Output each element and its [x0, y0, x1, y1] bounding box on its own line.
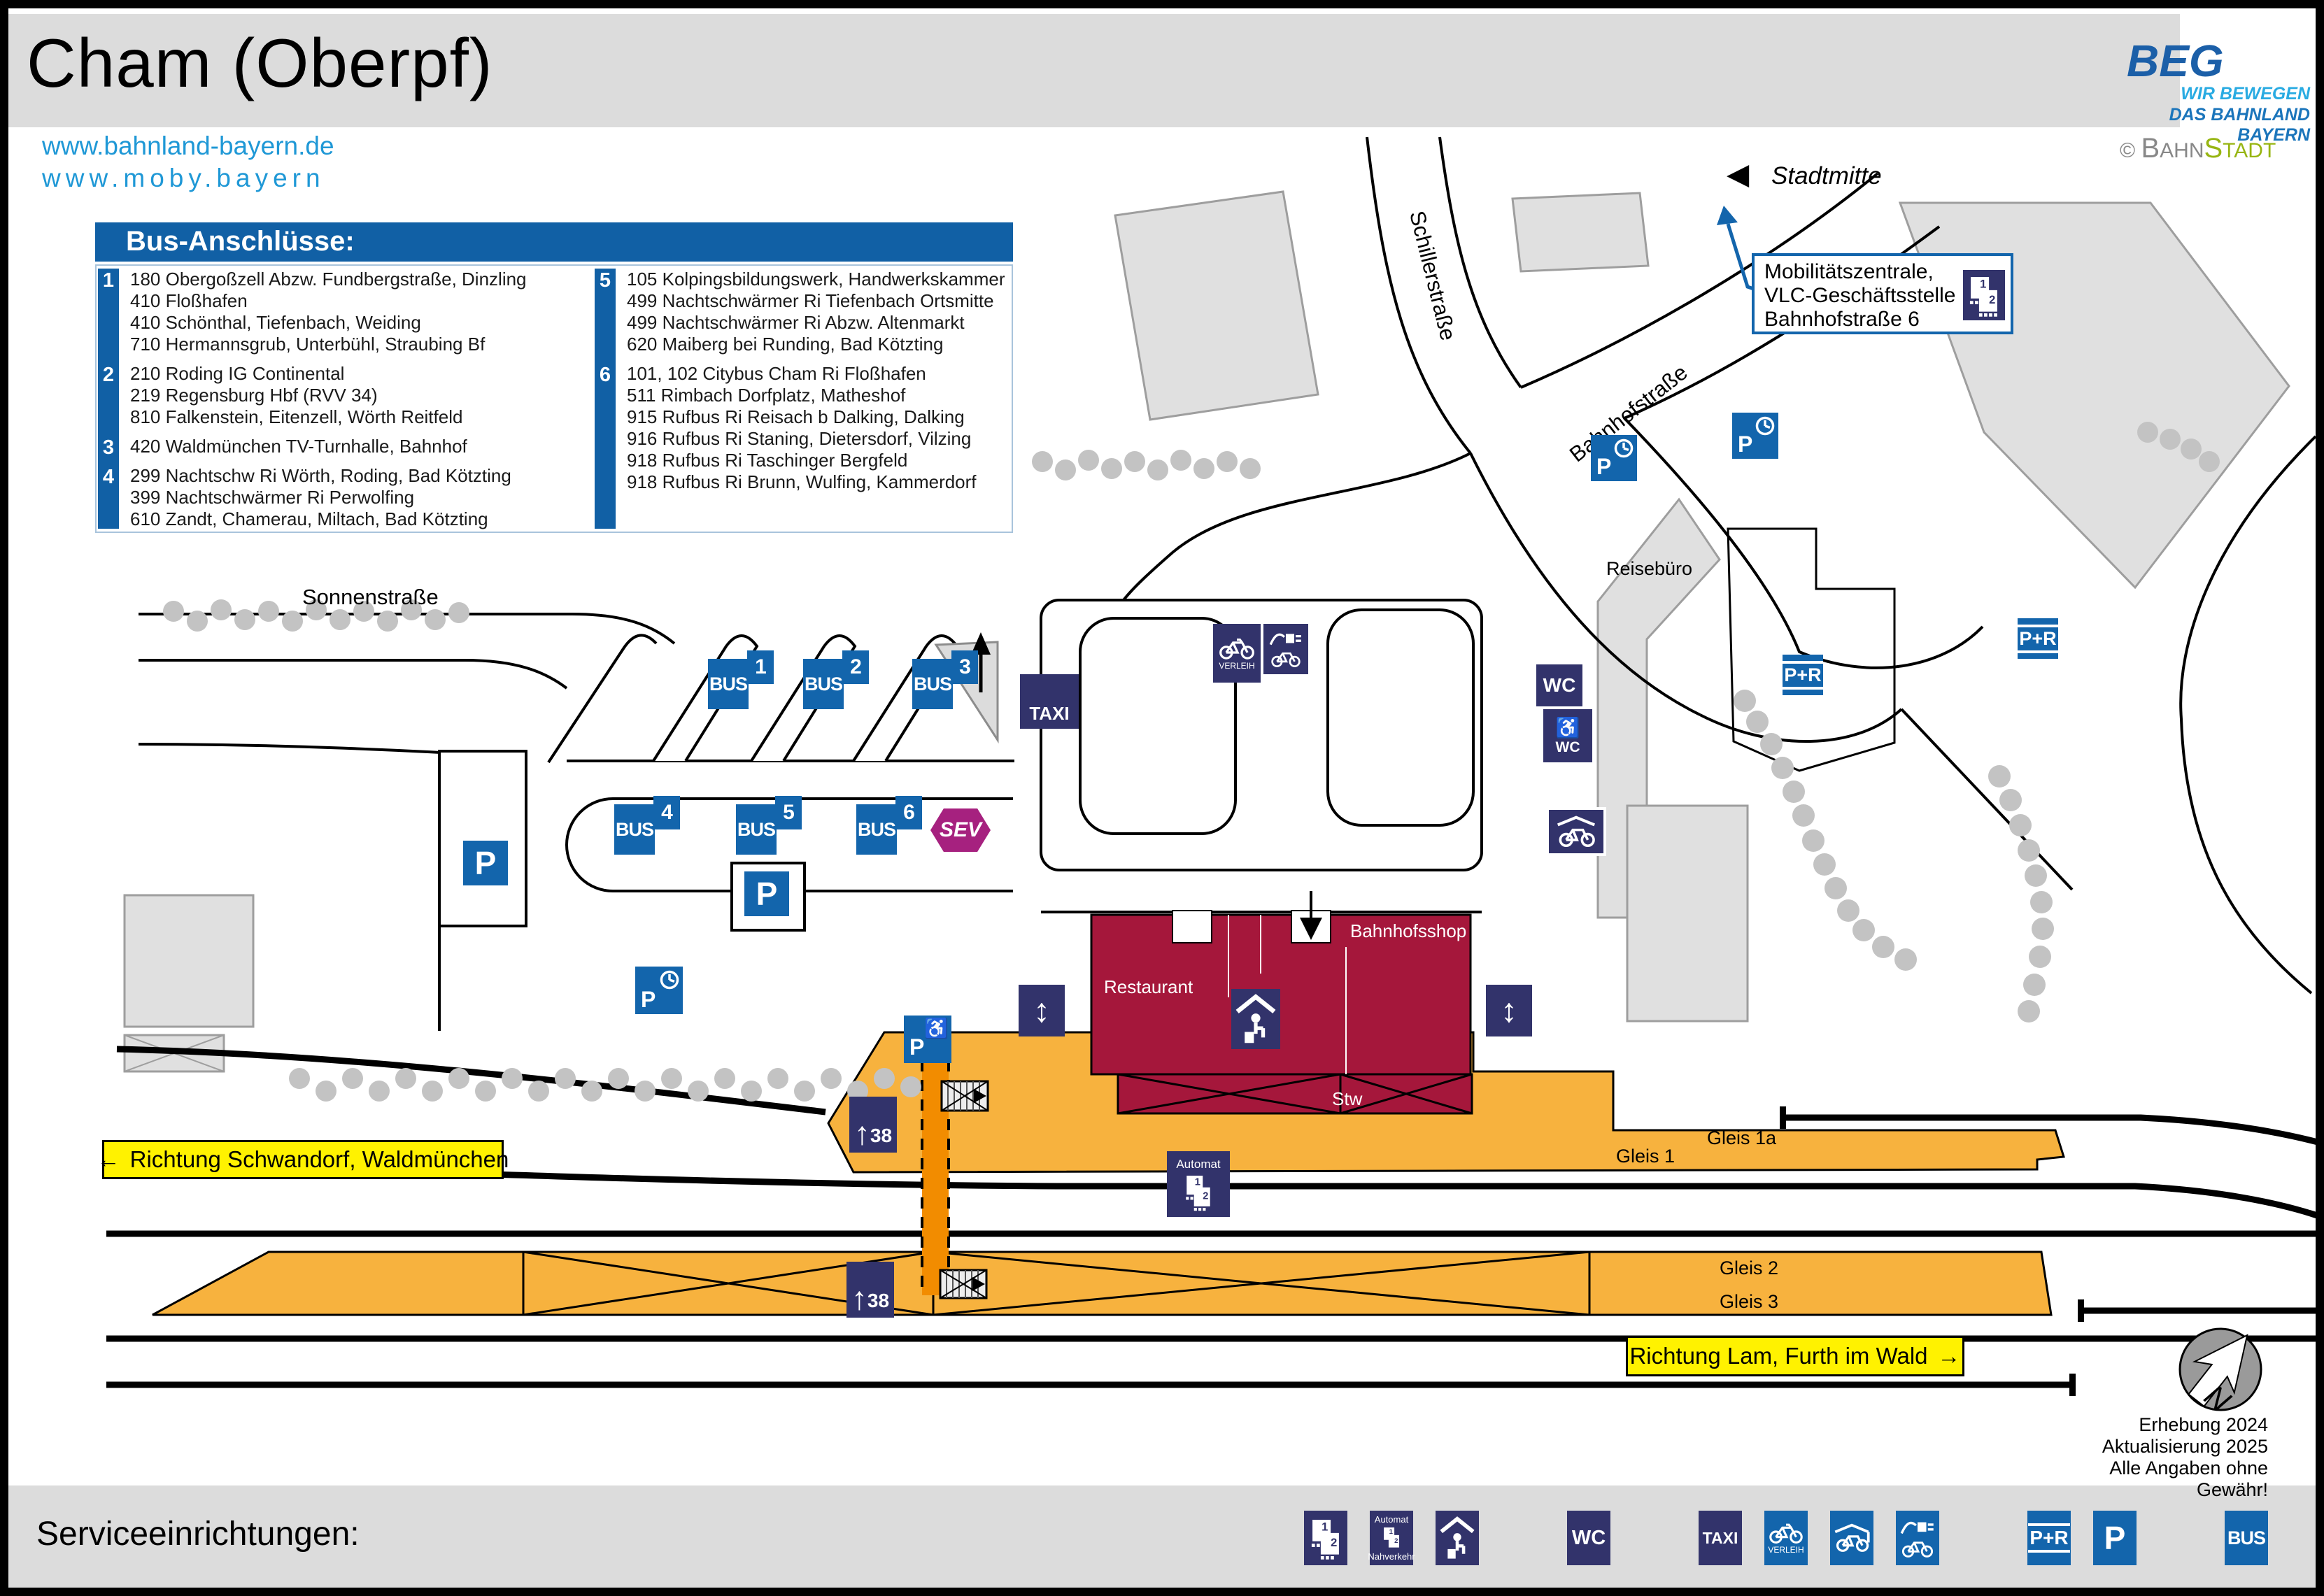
covered-bike-parking-icon	[1830, 1511, 1873, 1565]
local-ticket-machine-icon: Automat 12 Nahverkehr	[1370, 1511, 1413, 1565]
short-term-parking-icon: P	[635, 967, 683, 1014]
left-arrow-icon: ←	[97, 1146, 120, 1173]
gleis1-label: Gleis 1	[1616, 1146, 1675, 1167]
ebike-charging-icon	[1263, 624, 1308, 674]
bus-route-line: 610 Zandt, Chamerau, Miltach, Bad Kötzti…	[130, 508, 592, 530]
short-term-parking-icon: P	[1591, 435, 1637, 481]
bahnstadt-logo: © BAHNSTADT	[2120, 133, 2276, 164]
waiting-area-icon	[1231, 989, 1280, 1049]
short-term-parking-icon: P	[1732, 413, 1778, 459]
bike-rental-icon: VERLEIH	[1764, 1511, 1808, 1565]
svg-text:1: 1	[1195, 1176, 1200, 1188]
bus-route-line: 918 Rufbus Ri Brunn, Wulfing, Kammerdorf	[627, 471, 1012, 493]
svg-text:1: 1	[1322, 1520, 1328, 1533]
bus-route-line: 511 Rimbach Dorfplatz, Matheshof	[627, 385, 1012, 406]
wheelchair-icon: ♿	[924, 1017, 949, 1040]
svg-text:2: 2	[1394, 1537, 1398, 1545]
reiseburo-label: Reisebüro	[1606, 558, 1692, 580]
platform-height-38-icon: ↑38	[849, 1097, 897, 1153]
bus-route-line: 101, 102 Citybus Cham Ri Floßhafen	[627, 363, 1012, 385]
waiting-area-icon	[1436, 1511, 1479, 1565]
bus-group-number: 6	[595, 364, 616, 387]
bus-group-number: 2	[98, 364, 119, 387]
bus-route-line: 410 Floßhafen	[130, 290, 592, 312]
bus-group-2: 2210 Roding IG Continental219 Regensburg…	[98, 363, 592, 428]
bus-group-number: 3	[98, 436, 119, 459]
direction-sign-lam: Richtung Lam, Furth im Wald →	[1626, 1336, 1964, 1376]
ticket-machine-automat-icon: Automat 12	[1167, 1151, 1230, 1217]
bus-stop-6-icon: BUS6	[856, 804, 897, 855]
bus-stop-1-icon: BUS1	[708, 659, 749, 709]
bus-route-line: 420 Waldmünchen TV-Turnhalle, Bahnhof	[130, 436, 592, 457]
service-title: Serviceeinrichtungen:	[36, 1515, 360, 1553]
bus-group-1: 1180 Obergoßzell Abzw. Fundbergstraße, D…	[98, 269, 592, 355]
parking-icon: P	[463, 841, 508, 885]
bus-stop-5-number: 5	[775, 796, 802, 829]
bus-stop-3-number: 3	[951, 650, 978, 684]
bus-group-6: 6101, 102 Citybus Cham Ri Floßhafen511 R…	[595, 363, 1012, 493]
bus-connections-right-column: 5105 Kolpingsbildungswerk, Handwerkskamm…	[595, 269, 1012, 529]
accessible-parking-icon: P ♿	[904, 1016, 951, 1063]
ticket-machine-icon: 12	[1963, 270, 2005, 320]
bahnhofsshop-label: Bahnhofsshop	[1350, 920, 1466, 942]
gleis3-label: Gleis 3	[1720, 1291, 1778, 1313]
bus-icon: BUS	[2225, 1511, 2268, 1565]
svg-text:2: 2	[1989, 293, 1995, 306]
bus-stop-6-number: 6	[895, 796, 922, 829]
compass-icon: N	[2175, 1320, 2268, 1419]
wc-accessible-icon: ♿ WC	[1543, 709, 1592, 762]
svg-text:1: 1	[1980, 277, 1986, 290]
bus-group-number: 1	[98, 269, 119, 292]
park-and-ride-icon: P+R	[2018, 618, 2058, 659]
wc-icon: WC	[1536, 664, 1582, 706]
bus-route-line: 219 Regensburg Hbf (RVV 34)	[130, 385, 592, 406]
bus-stop-1-number: 1	[747, 650, 774, 684]
park-and-ride-icon: P+R	[1783, 655, 1823, 695]
restaurant-label: Restaurant	[1104, 976, 1193, 998]
parking-icon: P	[2093, 1511, 2137, 1565]
station-plan-canvas: N Cham (Oberpf) www.bahnland-bayern.de w…	[0, 0, 2324, 1596]
beg-tagline-1: WIR BEWEGEN	[2100, 84, 2310, 104]
bus-route-line: 499 Nachtschwärmer Ri Abzw. Altenmarkt	[627, 312, 1012, 334]
moby-bayern-link[interactable]: www.moby.bayern	[42, 164, 325, 193]
direction-sign-schwandorf: ← Richtung Schwandorf, Waldmünchen	[102, 1140, 504, 1179]
bus-route-line: 620 Maiberg bei Runding, Bad Kötzting	[627, 334, 1012, 355]
beg-logo-text: BEG	[2127, 35, 2224, 87]
bahnland-bayern-link[interactable]: www.bahnland-bayern.de	[42, 131, 334, 161]
gleis1a-label: Gleis 1a	[1707, 1127, 1776, 1149]
bus-route-line: 915 Rufbus Ri Reisach b Dalking, Dalking	[627, 406, 1012, 428]
bus-route-line: 710 Hermannsgrub, Unterbühl, Straubing B…	[130, 334, 592, 355]
ebike-charging-icon	[1896, 1511, 1939, 1565]
taxi-stand-icon: TAXI	[1020, 674, 1079, 729]
survey-notes: Erhebung 2024 Aktualisierung 2025 Alle A…	[2037, 1414, 2268, 1501]
bus-group-4: 4299 Nachtschw Ri Wörth, Roding, Bad Köt…	[98, 465, 592, 530]
park-and-ride-icon: P+R	[2027, 1511, 2071, 1565]
bus-route-line: 499 Nachtschwärmer Ri Tiefenbach Ortsmit…	[627, 290, 1012, 312]
taxi-icon: TAXI	[1699, 1511, 1742, 1565]
bus-stop-4-icon: BUS4	[614, 804, 655, 855]
ticket-machine-icon: 12	[1304, 1511, 1347, 1565]
bus-connections-left-column: 1180 Obergoßzell Abzw. Fundbergstraße, D…	[98, 269, 592, 529]
elevator-icon: ↕	[1486, 985, 1532, 1036]
bus-route-line: 210 Roding IG Continental	[130, 363, 592, 385]
page-title: Cham (Oberpf)	[27, 24, 493, 103]
parking-icon: P	[744, 871, 789, 916]
bike-rental-icon: VERLEIH	[1213, 624, 1261, 683]
bus-group-3: 3420 Waldmünchen TV-Turnhalle, Bahnhof	[98, 436, 592, 457]
stadtmitte-arrow-icon: ◀	[1727, 157, 1749, 191]
bus-stop-2-icon: BUS2	[803, 659, 844, 709]
bus-route-line: 399 Nachtschwärmer Ri Perwolfing	[130, 487, 592, 508]
bus-route-line: 810 Falkenstein, Eitenzell, Wörth Reitfe…	[130, 406, 592, 428]
stw-label: Stw	[1332, 1088, 1362, 1110]
bus-stop-2-number: 2	[842, 650, 869, 684]
svg-text:2: 2	[1203, 1190, 1208, 1202]
platform-height-38-icon: ↑38	[846, 1262, 894, 1318]
copyright-icon: ©	[2120, 139, 2135, 162]
right-arrow-icon: →	[1938, 1343, 1961, 1369]
bus-group-number: 4	[98, 466, 119, 489]
bus-stop-3-icon: BUS3	[912, 659, 953, 709]
bus-route-line: 299 Nachtschw Ri Wörth, Roding, Bad Kötz…	[130, 465, 592, 487]
bus-connections-header: Bus-Anschlüsse:	[95, 222, 1013, 262]
elevator-icon: ↕	[1019, 985, 1065, 1036]
bus-route-line: 918 Rufbus Ri Taschinger Bergfeld	[627, 450, 1012, 471]
svg-text:2: 2	[1331, 1536, 1337, 1549]
wc-icon: WC	[1567, 1511, 1610, 1565]
bus-route-line: 105 Kolpingsbildungswerk, Handwerkskamme…	[627, 269, 1012, 290]
bus-stop-5-icon: BUS5	[736, 804, 777, 855]
bus-stop-4-number: 4	[653, 796, 680, 829]
bus-route-line: 916 Rufbus Ri Staning, Dietersdorf, Vilz…	[627, 428, 1012, 450]
street-label-sonnenstrasse: Sonnenstraße	[302, 585, 439, 610]
bus-route-line: 180 Obergoßzell Abzw. Fundbergstraße, Di…	[130, 269, 592, 290]
svg-text:1: 1	[1389, 1528, 1394, 1536]
wheelchair-icon: ♿	[1556, 716, 1580, 739]
gleis2-label: Gleis 2	[1720, 1257, 1778, 1279]
covered-bike-parking-icon	[1546, 807, 1606, 856]
bus-connections-box: 1180 Obergoßzell Abzw. Fundbergstraße, D…	[95, 264, 1013, 533]
bus-group-5: 5105 Kolpingsbildungswerk, Handwerkskamm…	[595, 269, 1012, 355]
stadtmitte-label: Stadtmitte	[1771, 162, 1882, 190]
mobility-centre-box: Mobilitätszentrale, VLC-Geschäftsstelle …	[1752, 253, 2013, 334]
bus-route-line: 410 Schönthal, Tiefenbach, Weiding	[130, 312, 592, 334]
bus-group-number: 5	[595, 269, 616, 292]
